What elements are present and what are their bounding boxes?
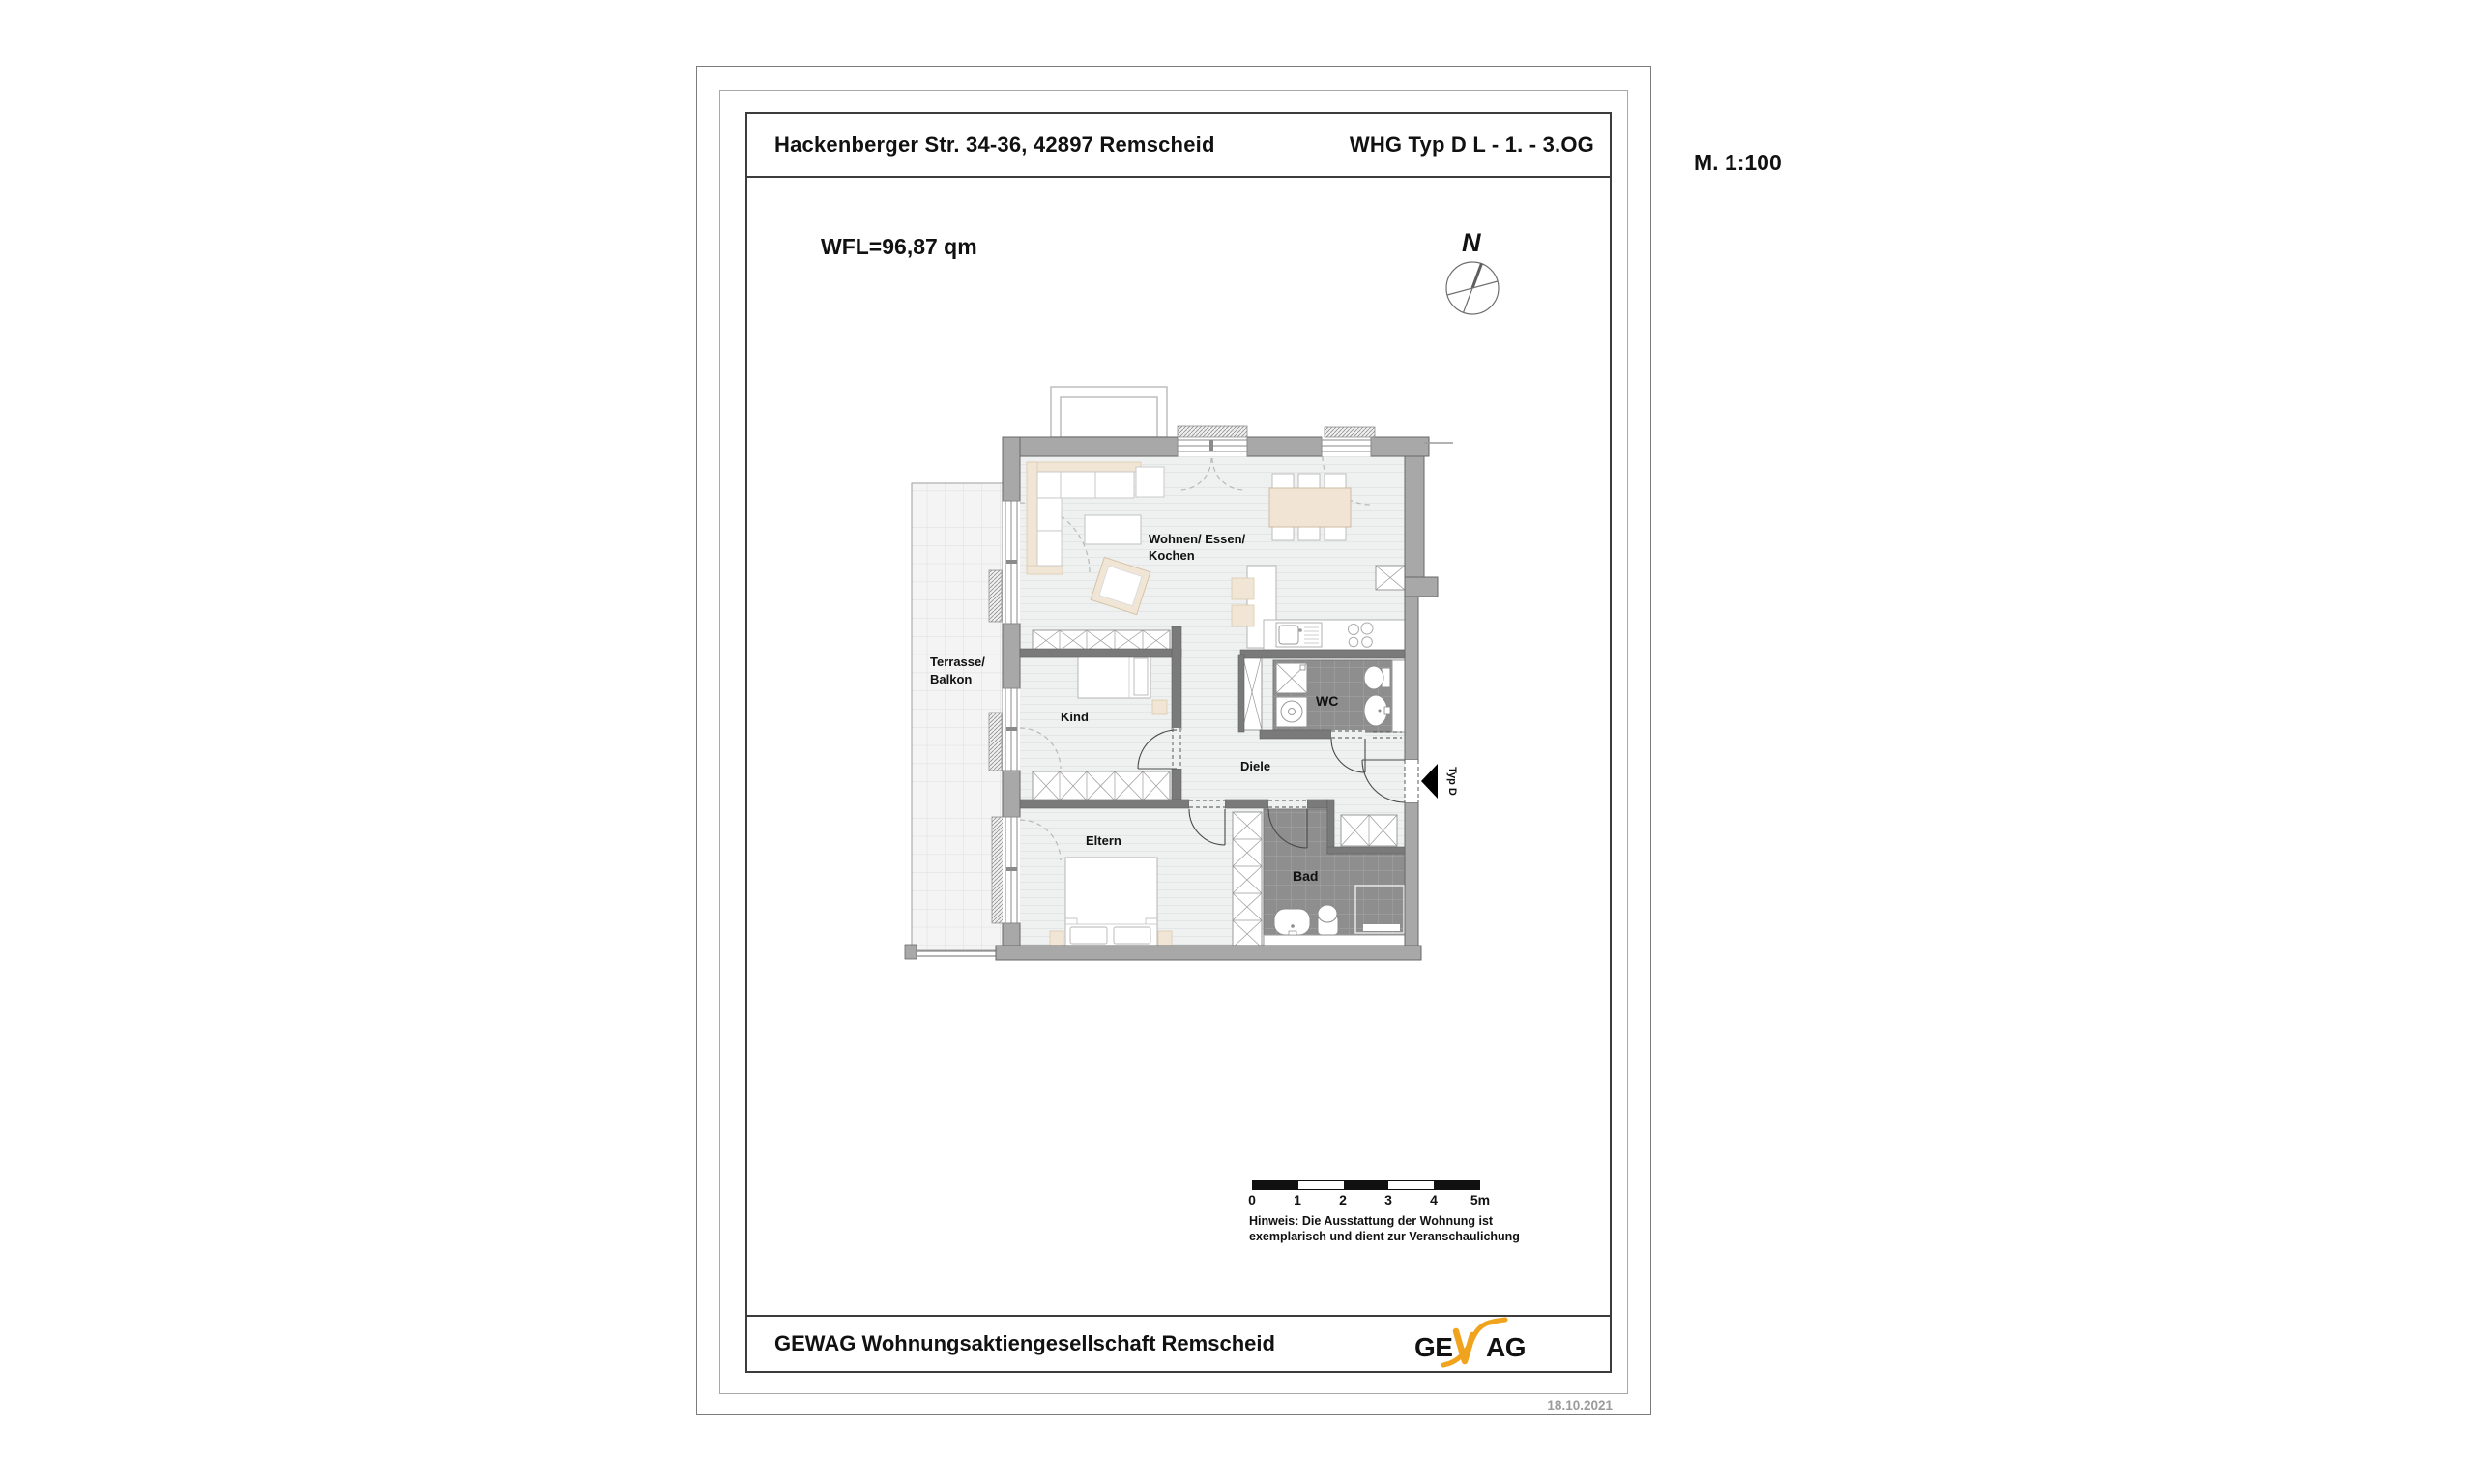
- entrance-arrow-icon: [1421, 764, 1438, 799]
- window-living: [1003, 501, 1020, 624]
- scale-segment: [1434, 1181, 1479, 1189]
- floor-plan: Typ D Wohnen/ Essen/ Kochen Terrasse/ Ba…: [899, 382, 1465, 974]
- scale-tick-1: 1: [1294, 1192, 1301, 1208]
- window-sill-1: [989, 570, 1002, 622]
- scale-tick-4: 4: [1430, 1192, 1438, 1208]
- canopy-outline: [1051, 387, 1167, 437]
- label-parents: Eltern: [1086, 833, 1121, 848]
- scale-tick-0: 0: [1248, 1192, 1256, 1208]
- page: Hackenberger Str. 34-36, 42897 Remscheid…: [0, 0, 2475, 1484]
- scale-bar: 0 1 2 3 4 5m: [1249, 1178, 1500, 1218]
- entrance-marker: Typ D: [1421, 764, 1458, 799]
- kitchen-window-sill: [1325, 427, 1375, 437]
- note-line-2: exemplarisch und dient zur Veranschaulic…: [1249, 1230, 1520, 1245]
- hall-wardrobe-column: [1233, 812, 1262, 947]
- area-label: WFL=96,87 qm: [821, 234, 977, 260]
- unit-type-text: WHG Typ D L - 1. - 3.OG: [1350, 132, 1594, 158]
- note-text: Hinweis: Die Ausstattung der Wohnung ist…: [1249, 1214, 1520, 1244]
- window-sill-2: [989, 713, 1002, 771]
- child-closet: [1033, 771, 1170, 800]
- wc-side-cabinet: [1242, 655, 1262, 730]
- label-bath: Bad: [1293, 868, 1318, 884]
- coffee-table: [1085, 515, 1141, 544]
- sideboard: [1033, 630, 1170, 651]
- scale-segment: [1298, 1181, 1344, 1189]
- label-terrace-1: Terrasse/: [930, 655, 985, 669]
- parents-room: [1050, 858, 1172, 946]
- window-parents: [1003, 817, 1020, 923]
- bath-basin: [1274, 909, 1310, 935]
- title-block-footer: GEWAG Wohnungsaktiengesellschaft Remsche…: [747, 1315, 1610, 1371]
- label-living-2: Kochen: [1149, 548, 1195, 563]
- logo-ge: GE: [1414, 1332, 1452, 1362]
- window-sill-3: [992, 817, 1004, 923]
- dryer: [1276, 697, 1307, 727]
- sink: [1276, 623, 1322, 647]
- scale-tick-2: 2: [1339, 1192, 1347, 1208]
- scale-label: M. 1:100: [1694, 150, 1782, 176]
- entrance-type-label: Typ D: [1446, 767, 1458, 796]
- balcony-door-sill: [1178, 426, 1247, 437]
- logo-ag: AG: [1486, 1332, 1526, 1362]
- balcony-door: [1178, 426, 1247, 456]
- compass-crossline: [1447, 281, 1498, 295]
- scale-bar-segments: [1252, 1180, 1480, 1190]
- dining-set: [1269, 474, 1351, 540]
- window-child: [1003, 688, 1020, 771]
- parents-nightstand-right: [1158, 931, 1172, 946]
- north-letter: N: [1462, 228, 1481, 257]
- scale-segment: [1344, 1181, 1389, 1189]
- address-text: Hackenberger Str. 34-36, 42897 Remscheid: [774, 132, 1215, 158]
- scale-segment: [1388, 1181, 1434, 1189]
- window-kitchen: [1322, 427, 1375, 456]
- gewag-logo: GE AG: [1409, 1317, 1554, 1371]
- parents-nightstand-left: [1050, 931, 1063, 946]
- label-living-1: Wohnen/ Essen/: [1149, 532, 1246, 546]
- wc-shaft: [1392, 660, 1405, 732]
- compass-needle-north-half: [1472, 264, 1482, 289]
- note-line-1: Hinweis: Die Ausstattung der Wohnung ist: [1249, 1214, 1520, 1230]
- child-bed: [1078, 655, 1150, 698]
- stool-2: [1232, 605, 1254, 626]
- bath-install-wall: [1264, 935, 1405, 946]
- label-terrace-2: Balkon: [930, 672, 972, 686]
- entry-niche-closet: [1341, 815, 1397, 846]
- label-hall: Diele: [1240, 759, 1270, 773]
- title-block-header: Hackenberger Str. 34-36, 42897 Remscheid…: [747, 114, 1610, 178]
- company-name: GEWAG Wohnungsaktiengesellschaft Remsche…: [774, 1331, 1275, 1356]
- scale-tick-3: 3: [1384, 1192, 1392, 1208]
- date-label: 18.10.2021: [1504, 1398, 1613, 1412]
- dining-table: [1269, 488, 1351, 527]
- washing-machine: [1276, 663, 1307, 693]
- stool-1: [1232, 578, 1254, 599]
- parents-bed: [1065, 858, 1157, 946]
- scale-tick-5: 5m: [1470, 1192, 1490, 1208]
- bath-toilet: [1318, 905, 1338, 935]
- scale-segment: [1253, 1181, 1298, 1189]
- terrace-area: [905, 483, 1004, 959]
- wc-toilet: [1364, 666, 1390, 689]
- label-child: Kind: [1061, 710, 1089, 724]
- tall-cabinet: [1376, 566, 1405, 590]
- label-wc: WC: [1316, 693, 1338, 709]
- child-nightstand: [1152, 700, 1167, 714]
- north-arrow: N: [1429, 211, 1522, 327]
